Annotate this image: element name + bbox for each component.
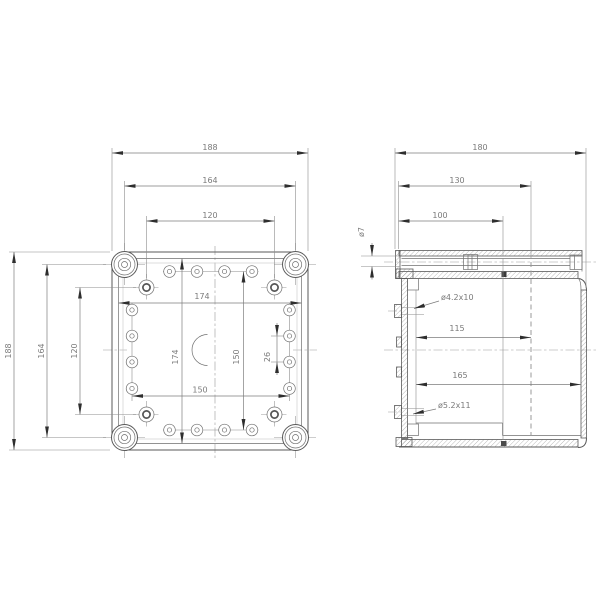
cover-screw-channel <box>396 251 583 279</box>
dim-front-corner-screw-width-label: 164 <box>202 176 217 185</box>
seal-joint-bottom <box>501 441 507 446</box>
front-view: 188 164 120 188 164 120 174 <box>4 143 317 459</box>
seal-joint-top <box>502 272 507 278</box>
dim-knockout-pitch-label: 26 <box>263 352 272 362</box>
technical-drawing: 188 164 120 188 164 120 174 <box>0 0 600 600</box>
dim-knockout-col-span-label: 150 <box>192 386 207 395</box>
bottom-wall-section <box>399 423 581 447</box>
dim-front-inner-screw-height-label: 120 <box>70 343 79 358</box>
corner-boss <box>103 416 146 459</box>
front-dimensions: 188 164 120 188 164 120 174 <box>4 143 308 450</box>
dim-depth-lid-label: 130 <box>449 176 464 185</box>
callout-hole-lower-label: ø5.2x11 <box>438 401 471 410</box>
mounting-hole <box>261 274 288 301</box>
dim-cover-screw-diameter-label: ø7 <box>357 227 366 237</box>
dim-front-outer-width-label: 188 <box>202 143 217 152</box>
center-arc <box>192 335 208 366</box>
mounting-hole <box>133 401 160 428</box>
corner-screw-bosses <box>103 243 317 459</box>
dim-depth-outer-label: 180 <box>472 143 487 152</box>
drawing-canvas: 188 164 120 188 164 120 174 <box>0 0 600 600</box>
mounting-holes <box>133 274 288 428</box>
back-wall-section <box>578 279 587 448</box>
side-view: 180 130 100 ø7 ø4.2x10 115 165 ø <box>357 143 597 448</box>
dim-lid-width-label: 174 <box>194 292 209 301</box>
mounting-hole <box>261 401 288 428</box>
mounting-hole <box>133 274 160 301</box>
dim-front-inner-screw-width-label: 120 <box>202 211 217 220</box>
dim-lid-height-label: 174 <box>171 349 180 364</box>
callout-hole-upper-label: ø4.2x10 <box>441 293 474 302</box>
front-wall-section <box>388 269 424 447</box>
dim-inner-depth-b-label: 165 <box>452 371 467 380</box>
dim-knockout-row-span-label: 150 <box>232 349 241 364</box>
knockout-rows <box>132 272 290 431</box>
dim-inner-depth-a-label: 115 <box>449 324 464 333</box>
dim-front-outer-height-label: 188 <box>4 343 13 358</box>
corner-boss <box>274 416 317 459</box>
dim-depth-base-label: 100 <box>432 211 447 220</box>
dim-front-corner-screw-height-label: 164 <box>37 343 46 358</box>
